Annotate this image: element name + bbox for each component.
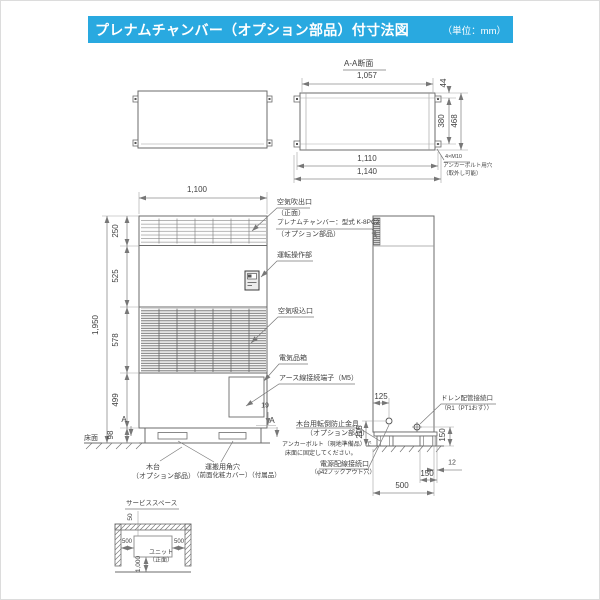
- dim-150-vertical: 150: [439, 428, 447, 441]
- aa-section-box: [294, 93, 441, 150]
- dim-1100: 1,100: [187, 186, 207, 194]
- dim-150-horizontal: 150: [420, 470, 433, 478]
- dim-1110: 1,110: [357, 155, 376, 163]
- section-marker-a-right: A: [269, 417, 274, 425]
- service-label-unit-front: （正面）: [149, 558, 173, 564]
- dim-1950: 1,950: [92, 315, 100, 335]
- drawing-page: プレナムチャンバー（オプション部品）付寸法図 （単位：mm） A-A断面 1,0…: [0, 0, 600, 600]
- floor-line-front: [84, 443, 270, 449]
- dim-380: 380: [438, 114, 446, 127]
- page-title: プレナムチャンバー（オプション部品）付寸法図: [95, 20, 409, 40]
- label-floor: 床面: [84, 435, 98, 442]
- anchor-hole-note-qty: 4×M10: [445, 155, 462, 161]
- dim-19: 19: [261, 403, 269, 410]
- section-marker-a-left: A: [121, 416, 126, 424]
- title-bar: プレナムチャンバー（オプション部品）付寸法図 （単位：mm）: [88, 16, 513, 43]
- note-anchor-bolt-line1: アンカーボルト（現地準備品）で: [282, 442, 372, 448]
- label-transport-holes: 運搬用角穴: [205, 464, 240, 471]
- air-intake-louver: [141, 309, 266, 373]
- control-panel: [245, 271, 259, 290]
- label-wooden-base-option: （オプション部品）: [132, 473, 195, 480]
- aa-plan-left-box: [133, 91, 272, 148]
- dim-578: 578: [112, 333, 120, 346]
- wooden-base-side: [374, 432, 437, 446]
- dim-1057: 1,057: [357, 72, 377, 80]
- anchor-hole-note-removable: （取外し可能）: [443, 172, 482, 178]
- label-drain-connection: ドレン配管接続口: [441, 396, 493, 403]
- service-label-unit: ユニット: [149, 550, 173, 556]
- label-control-panel: 運転操作部: [277, 252, 312, 259]
- dim-12: 12: [448, 460, 456, 467]
- dim-250: 250: [112, 224, 120, 237]
- dim-499: 499: [112, 393, 120, 406]
- dim-98: 98: [107, 431, 115, 440]
- label-air-outlet: 空気吹出口: [277, 199, 312, 206]
- label-electrical-box: 電気品箱: [279, 355, 307, 362]
- wooden-base-front: [145, 428, 261, 443]
- dim-125: 125: [374, 393, 387, 401]
- service-space-title: サービススペース: [126, 501, 177, 508]
- dim-44: 44: [440, 79, 448, 88]
- dim-468: 468: [451, 114, 459, 127]
- label-tipover-bracket-option: （オプション部品）: [306, 430, 369, 437]
- label-power-knockout: （φ42ノックアウト穴）: [311, 470, 375, 476]
- label-plenum-model: プレナムチャンバー：型式 K-8PC2: [277, 220, 379, 227]
- service-dim-500-right: 500: [174, 539, 184, 545]
- label-transport-holes-cover: （前面化粧カバー）（付属品）: [193, 473, 281, 480]
- service-dim-500-left: 500: [122, 539, 132, 545]
- label-air-intake: 空気吸込口: [278, 308, 313, 315]
- note-anchor-bolt-line2: 床面に固定してください。: [285, 451, 357, 457]
- dim-1140: 1,140: [357, 168, 377, 176]
- air-outlet-grille: [141, 219, 266, 244]
- label-wooden-base: 木台: [146, 464, 160, 471]
- aa-title: A-A断面: [344, 60, 373, 68]
- anchor-hole-note: アンカーボルト用穴: [443, 164, 492, 170]
- label-earth-terminal: アース線接続端子（M5）: [279, 375, 358, 382]
- dimension-drawing: [0, 0, 600, 600]
- electrical-box: [229, 377, 264, 417]
- service-dim-1000: 1,000: [136, 556, 143, 572]
- label-plenum-option: （オプション部品）: [277, 231, 340, 238]
- label-power-connection: 電源配線接続口: [320, 461, 369, 468]
- label-air-outlet-front: （正面）: [277, 210, 305, 217]
- label-tipover-bracket: 木台用転倒防止金具: [296, 421, 359, 428]
- label-drain-thread: （R1（PT1おす））: [441, 406, 493, 412]
- dim-525: 525: [112, 269, 120, 282]
- service-dim-50: 50: [128, 513, 135, 520]
- side-view: [366, 216, 444, 452]
- dim-500: 500: [395, 482, 408, 490]
- unit-note: （単位：mm）: [443, 23, 506, 37]
